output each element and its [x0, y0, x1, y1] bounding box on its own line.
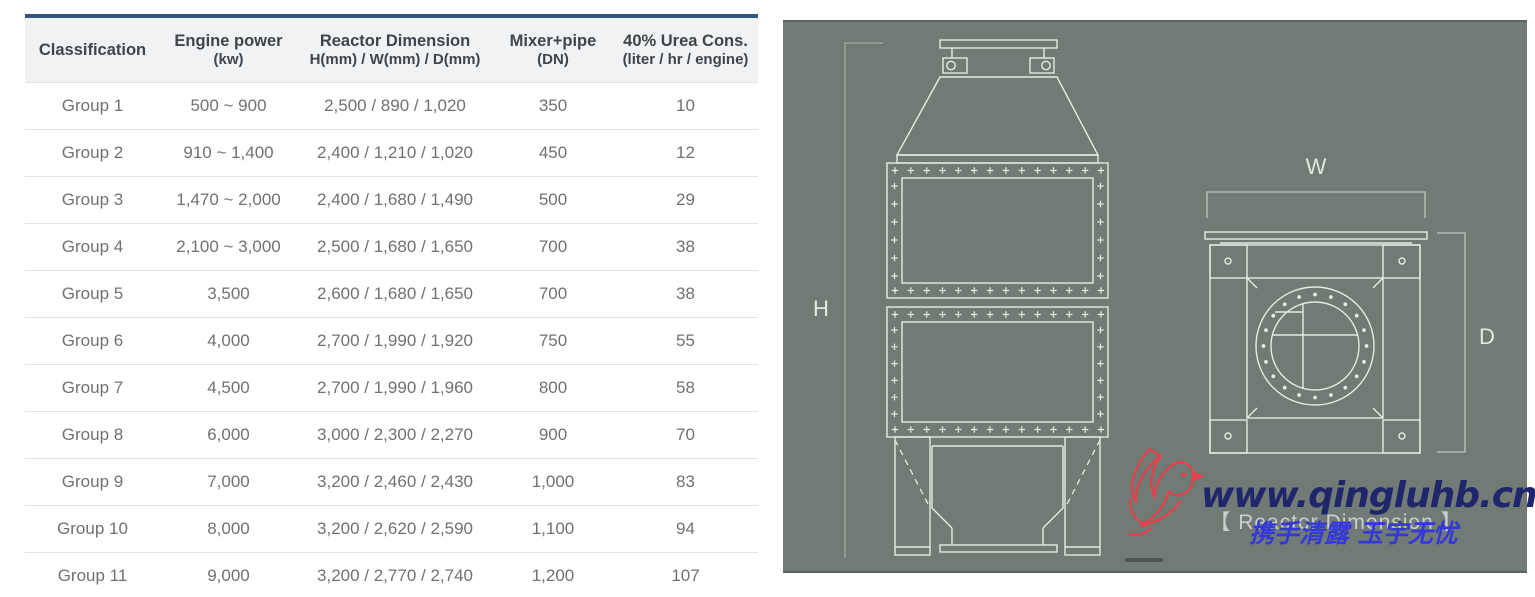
col-subtitle: (kw)	[162, 51, 295, 69]
classification-cell: Group 2	[25, 130, 160, 177]
watermark-url: www.qingluhb.cn	[1201, 475, 1535, 516]
reactor-side-view	[1205, 192, 1465, 453]
col-header-engine-power: Engine power (kw)	[160, 18, 297, 83]
value-cell: 700	[493, 271, 613, 318]
h-dimension-line	[845, 43, 883, 558]
table-row: Group 64,0002,700 / 1,990 / 1,92075055	[25, 318, 758, 365]
value-cell: 3,000 / 2,300 / 2,270	[297, 412, 493, 459]
table-row: Group 97,0003,200 / 2,460 / 2,4301,00083	[25, 459, 758, 506]
value-cell: 7,000	[160, 459, 297, 506]
value-cell: 58	[613, 365, 758, 412]
value-cell: 500 ~ 900	[160, 83, 297, 130]
w-dimension-line	[1207, 192, 1425, 218]
height-label: H	[813, 298, 829, 320]
value-cell: 2,600 / 1,680 / 1,650	[297, 271, 493, 318]
value-cell: 1,100	[493, 506, 613, 553]
col-header-urea-consumption: 40% Urea Cons. (liter / hr / engine)	[613, 18, 758, 83]
value-cell: 1,470 ~ 2,000	[160, 177, 297, 224]
value-cell: 2,400 / 1,210 / 1,020	[297, 130, 493, 177]
value-cell: 4,000	[160, 318, 297, 365]
classification-cell: Group 9	[25, 459, 160, 506]
value-cell: 1,200	[493, 553, 613, 597]
classification-cell: Group 10	[25, 506, 160, 553]
value-cell: 2,500 / 890 / 1,020	[297, 83, 493, 130]
value-cell: 800	[493, 365, 613, 412]
col-title: 40% Urea Cons.	[615, 31, 756, 51]
value-cell: 83	[613, 459, 758, 506]
micro-watermark	[1125, 558, 1163, 562]
reactor-diagram-panel: H W D 【 Reactor Dimension 】 www.qingluhb…	[783, 20, 1527, 573]
value-cell: 700	[493, 224, 613, 271]
col-title: Reactor Dimension	[299, 31, 491, 51]
classification-cell: Group 1	[25, 83, 160, 130]
col-title: Mixer+pipe	[495, 31, 611, 51]
value-cell: 2,400 / 1,680 / 1,490	[297, 177, 493, 224]
value-cell: 350	[493, 83, 613, 130]
table-row: Group 53,5002,600 / 1,680 / 1,65070038	[25, 271, 758, 318]
value-cell: 6,000	[160, 412, 297, 459]
classification-cell: Group 8	[25, 412, 160, 459]
value-cell: 2,500 / 1,680 / 1,650	[297, 224, 493, 271]
value-cell: 4,500	[160, 365, 297, 412]
width-label: W	[1306, 156, 1327, 178]
d-dimension-line	[1437, 233, 1465, 452]
value-cell: 10	[613, 83, 758, 130]
value-cell: 55	[613, 318, 758, 365]
depth-label: D	[1479, 326, 1495, 348]
header-row: Classification Engine power (kw) Reactor…	[25, 18, 758, 83]
table-body: Group 1500 ~ 9002,500 / 890 / 1,02035010…	[25, 83, 758, 597]
classification-cell: Group 5	[25, 271, 160, 318]
value-cell: 3,200 / 2,770 / 2,740	[297, 553, 493, 597]
value-cell: 3,500	[160, 271, 297, 318]
value-cell: 900	[493, 412, 613, 459]
spec-table: Classification Engine power (kw) Reactor…	[25, 18, 758, 597]
col-subtitle: H(mm) / W(mm) / D(mm)	[299, 51, 491, 69]
value-cell: 910 ~ 1,400	[160, 130, 297, 177]
table-row: Group 119,0003,200 / 2,770 / 2,7401,2001…	[25, 553, 758, 597]
table-row: Group 42,100 ~ 3,0002,500 / 1,680 / 1,65…	[25, 224, 758, 271]
col-subtitle: (DN)	[495, 51, 611, 69]
classification-cell: Group 11	[25, 553, 160, 597]
col-subtitle: (liter / hr / engine)	[615, 51, 756, 69]
classification-cell: Group 6	[25, 318, 160, 365]
bolt-marks	[891, 167, 1104, 432]
table-row: Group 108,0003,200 / 2,620 / 2,5901,1009…	[25, 506, 758, 553]
value-cell: 12	[613, 130, 758, 177]
value-cell: 29	[613, 177, 758, 224]
reactor-front-view	[887, 40, 1108, 555]
col-title: Classification	[27, 40, 158, 60]
page: Classification Engine power (kw) Reactor…	[0, 0, 1535, 597]
table-row: Group 86,0003,000 / 2,300 / 2,27090070	[25, 412, 758, 459]
value-cell: 38	[613, 224, 758, 271]
value-cell: 1,000	[493, 459, 613, 506]
watermark-slogan: 携手清露 玉宇无忧	[1249, 514, 1458, 550]
classification-cell: Group 3	[25, 177, 160, 224]
value-cell: 2,100 ~ 3,000	[160, 224, 297, 271]
value-cell: 94	[613, 506, 758, 553]
value-cell: 2,700 / 1,990 / 1,920	[297, 318, 493, 365]
value-cell: 38	[613, 271, 758, 318]
value-cell: 450	[493, 130, 613, 177]
bolt-circle-dots	[1262, 293, 1369, 400]
table-row: Group 31,470 ~ 2,0002,400 / 1,680 / 1,49…	[25, 177, 758, 224]
spec-table-panel: Classification Engine power (kw) Reactor…	[25, 14, 758, 597]
table-row: Group 1500 ~ 9002,500 / 890 / 1,02035010	[25, 83, 758, 130]
table-header: Classification Engine power (kw) Reactor…	[25, 18, 758, 83]
value-cell: 3,200 / 2,460 / 2,430	[297, 459, 493, 506]
table-row: Group 74,5002,700 / 1,990 / 1,96080058	[25, 365, 758, 412]
value-cell: 2,700 / 1,990 / 1,960	[297, 365, 493, 412]
col-title: Engine power	[162, 31, 295, 51]
value-cell: 8,000	[160, 506, 297, 553]
value-cell: 9,000	[160, 553, 297, 597]
col-header-mixer-pipe: Mixer+pipe (DN)	[493, 18, 613, 83]
classification-cell: Group 4	[25, 224, 160, 271]
value-cell: 500	[493, 177, 613, 224]
col-header-classification: Classification	[25, 18, 160, 83]
value-cell: 3,200 / 2,620 / 2,590	[297, 506, 493, 553]
col-header-reactor-dimension: Reactor Dimension H(mm) / W(mm) / D(mm)	[297, 18, 493, 83]
value-cell: 750	[493, 318, 613, 365]
classification-cell: Group 7	[25, 365, 160, 412]
table-row: Group 2910 ~ 1,4002,400 / 1,210 / 1,0204…	[25, 130, 758, 177]
value-cell: 70	[613, 412, 758, 459]
value-cell: 107	[613, 553, 758, 597]
